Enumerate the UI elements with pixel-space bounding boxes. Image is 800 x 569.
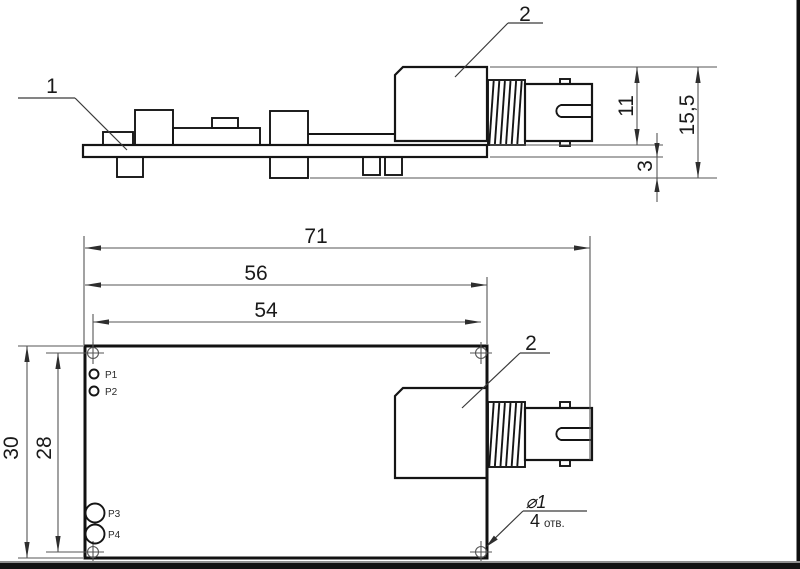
pcb-bottom-components <box>117 157 402 178</box>
connector-thread <box>488 80 525 145</box>
hole-unit-text: отв. <box>544 518 565 530</box>
pcb-plan-outline <box>85 346 487 558</box>
dim-54-text: 54 <box>254 299 278 322</box>
side-view: 1 2 11 15,5 <box>18 3 717 202</box>
connector-plan <box>395 388 592 478</box>
test-point-p3 <box>86 504 105 523</box>
connector-slot <box>556 428 592 440</box>
test-point-p1 <box>90 370 99 379</box>
window-bottom-bar <box>0 563 800 569</box>
technical-drawing-canvas: 1 2 11 15,5 <box>0 0 800 569</box>
test-point-p4 <box>86 525 105 544</box>
dim-15-5-text: 15,5 <box>676 95 699 136</box>
mounting-holes <box>82 342 492 563</box>
dim-56-text: 56 <box>244 262 267 285</box>
component <box>117 157 143 177</box>
connector-thread <box>488 402 525 467</box>
component <box>363 157 380 175</box>
window-right-border <box>797 0 800 561</box>
leader-part1: 1 <box>18 75 127 150</box>
hole-callout: ⌀1 4 отв. <box>486 492 587 547</box>
component <box>270 111 308 145</box>
bayonet-key <box>560 402 570 408</box>
dim-11-text: 11 <box>615 95 638 117</box>
cad-drawing-page: 1 2 11 15,5 <box>0 0 800 569</box>
component <box>385 157 402 175</box>
dim-3-text: 3 <box>634 160 657 172</box>
plan-view: P1 P2 P3 P4 <box>0 225 592 563</box>
hole-count-text: 4 <box>530 511 540 531</box>
pcb-top-components <box>103 110 394 145</box>
connector-body <box>395 67 487 141</box>
component <box>212 118 238 128</box>
hole-diameter-text: ⌀1 <box>526 492 547 512</box>
component <box>270 157 308 178</box>
dim-28-text: 28 <box>33 436 56 459</box>
test-point-p2-label: P2 <box>105 387 118 398</box>
part1-label: 1 <box>46 75 58 98</box>
bayonet-key <box>560 460 570 466</box>
bayonet-key <box>560 79 570 84</box>
dim-30-text: 30 <box>0 436 23 459</box>
component <box>173 128 260 145</box>
part2-label-plan: 2 <box>525 332 537 355</box>
connector-side <box>395 67 592 146</box>
leader-part2-plan: 2 <box>462 332 550 408</box>
component <box>103 132 133 145</box>
test-point-p4-label: P4 <box>108 530 121 541</box>
connector-body <box>395 388 487 478</box>
test-point-p3-label: P3 <box>108 509 121 520</box>
test-point-p1-label: P1 <box>105 370 118 381</box>
dim-71-text: 71 <box>304 225 327 248</box>
test-point-p2 <box>90 387 99 396</box>
connector-barrel <box>525 84 592 141</box>
test-points: P1 P2 P3 P4 <box>86 370 121 544</box>
connector-barrel <box>525 408 592 460</box>
pcb-side-profile <box>83 145 487 157</box>
plan-vertical-dimensions: 30 28 <box>0 346 88 558</box>
component <box>135 110 173 145</box>
bottom-bar-edge <box>0 561 800 563</box>
connector-slot <box>556 105 592 117</box>
